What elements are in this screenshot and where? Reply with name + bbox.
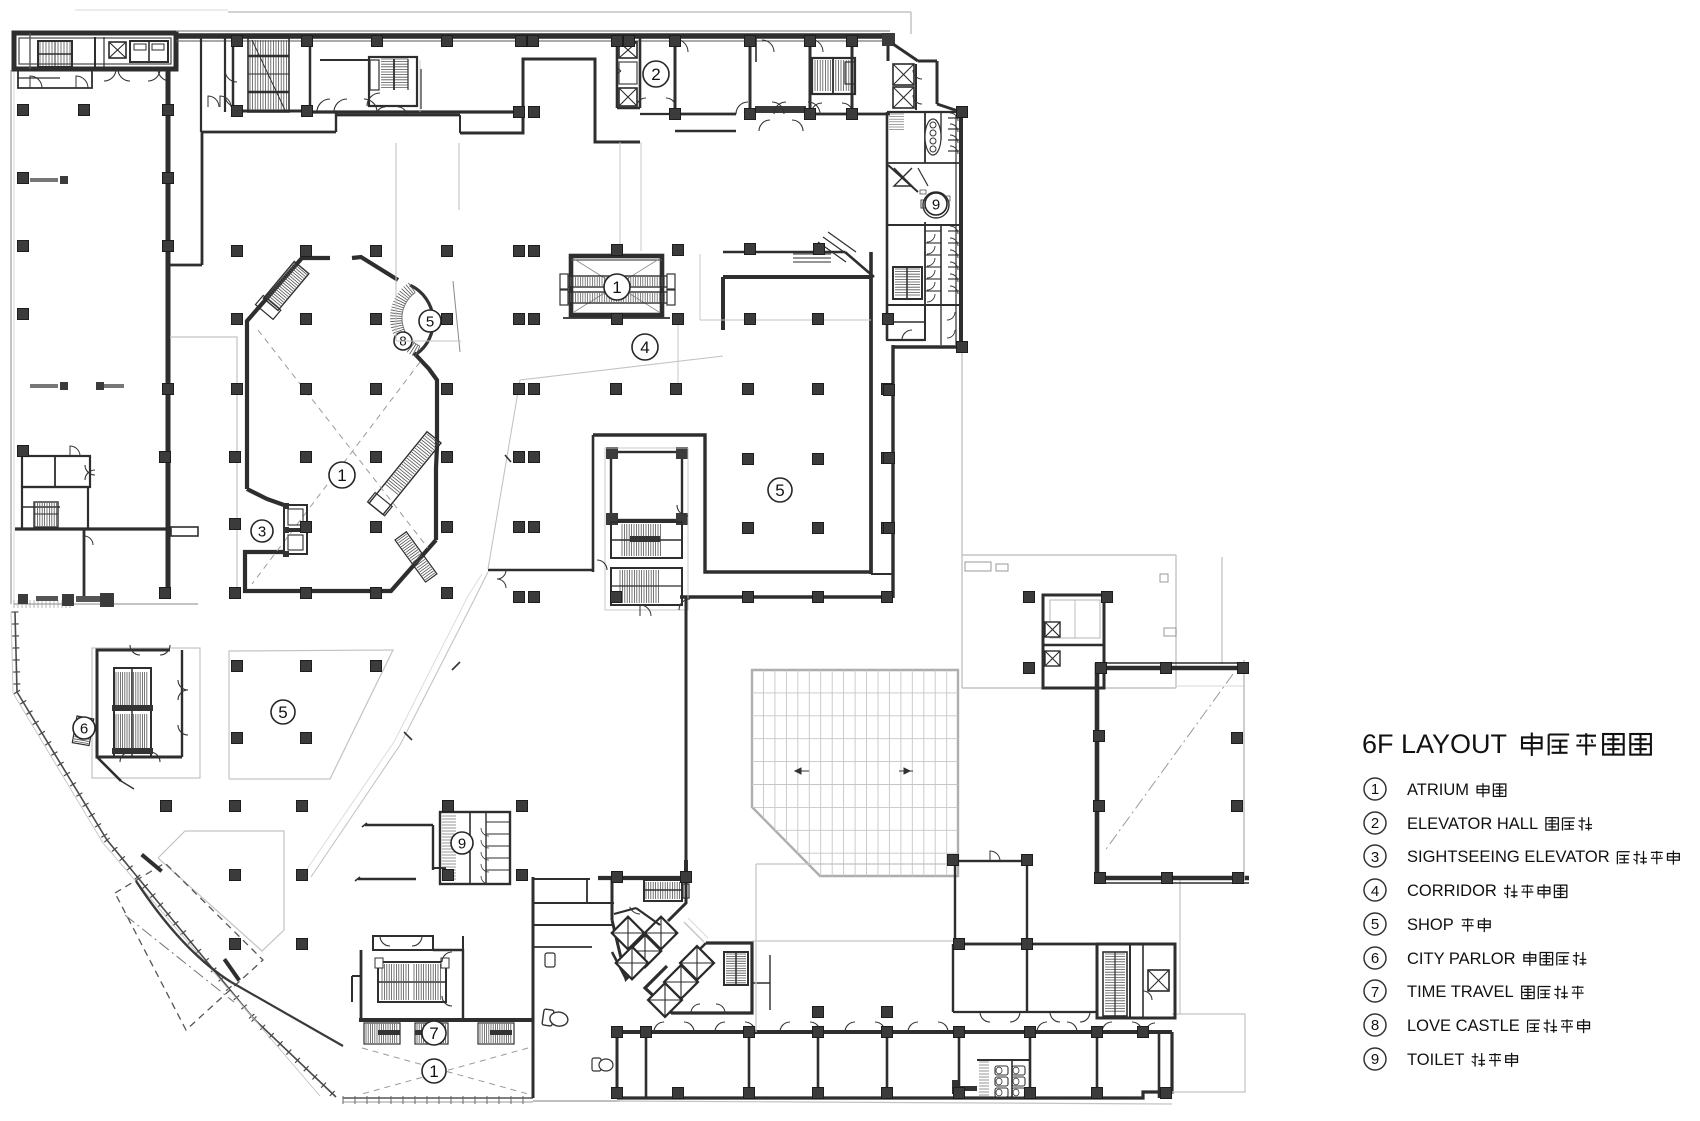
svg-text:2: 2 [651,65,660,84]
svg-text:1: 1 [337,466,346,485]
svg-text:SIGHTSEEING ELEVATOR: SIGHTSEEING ELEVATOR [1407,848,1610,866]
svg-text:9: 9 [1371,1051,1379,1068]
svg-text:TOILET: TOILET [1407,1051,1464,1069]
svg-text:4: 4 [1371,883,1379,900]
svg-text:2: 2 [1371,815,1379,832]
svg-text:7: 7 [429,1024,438,1043]
svg-text:7: 7 [1371,984,1379,1001]
svg-text:4: 4 [640,338,649,357]
svg-text:SHOP: SHOP [1407,916,1454,934]
svg-text:CITY PARLOR: CITY PARLOR [1407,950,1516,968]
svg-text:9: 9 [458,835,466,852]
svg-text:6: 6 [1371,950,1379,967]
svg-text:6: 6 [80,720,88,737]
svg-text:1: 1 [429,1062,438,1081]
svg-text:1: 1 [612,278,621,297]
svg-text:8: 8 [1371,1017,1379,1034]
svg-text:6F LAYOUT: 6F LAYOUT [1362,729,1507,759]
svg-text:5: 5 [1371,916,1379,933]
svg-text:5: 5 [278,703,287,722]
svg-text:LOVE CASTLE: LOVE CASTLE [1407,1017,1520,1035]
svg-text:3: 3 [258,523,266,540]
svg-text:TIME TRAVEL: TIME TRAVEL [1407,983,1514,1001]
svg-text:3: 3 [1371,849,1379,866]
svg-text:5: 5 [426,313,434,330]
svg-text:CORRIDOR: CORRIDOR [1407,882,1497,900]
svg-text:9: 9 [932,196,940,213]
svg-text:1: 1 [1371,781,1379,798]
svg-text:ELEVATOR HALL: ELEVATOR HALL [1407,815,1538,833]
svg-text:ATRIUM: ATRIUM [1407,781,1469,799]
svg-text:5: 5 [775,481,784,500]
